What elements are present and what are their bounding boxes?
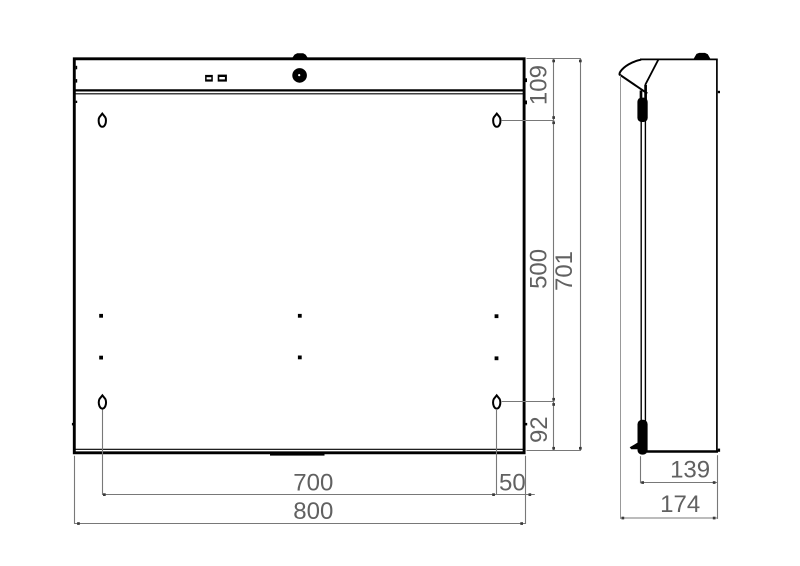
svg-text:500: 500	[526, 249, 553, 289]
svg-text:109: 109	[526, 65, 553, 105]
svg-text:174: 174	[660, 491, 700, 518]
svg-text:701: 701	[551, 251, 578, 291]
svg-text:800: 800	[293, 498, 333, 525]
svg-text:700: 700	[293, 470, 333, 497]
svg-text:92: 92	[526, 416, 553, 443]
svg-text:139: 139	[670, 456, 710, 483]
svg-text:50: 50	[499, 470, 526, 497]
